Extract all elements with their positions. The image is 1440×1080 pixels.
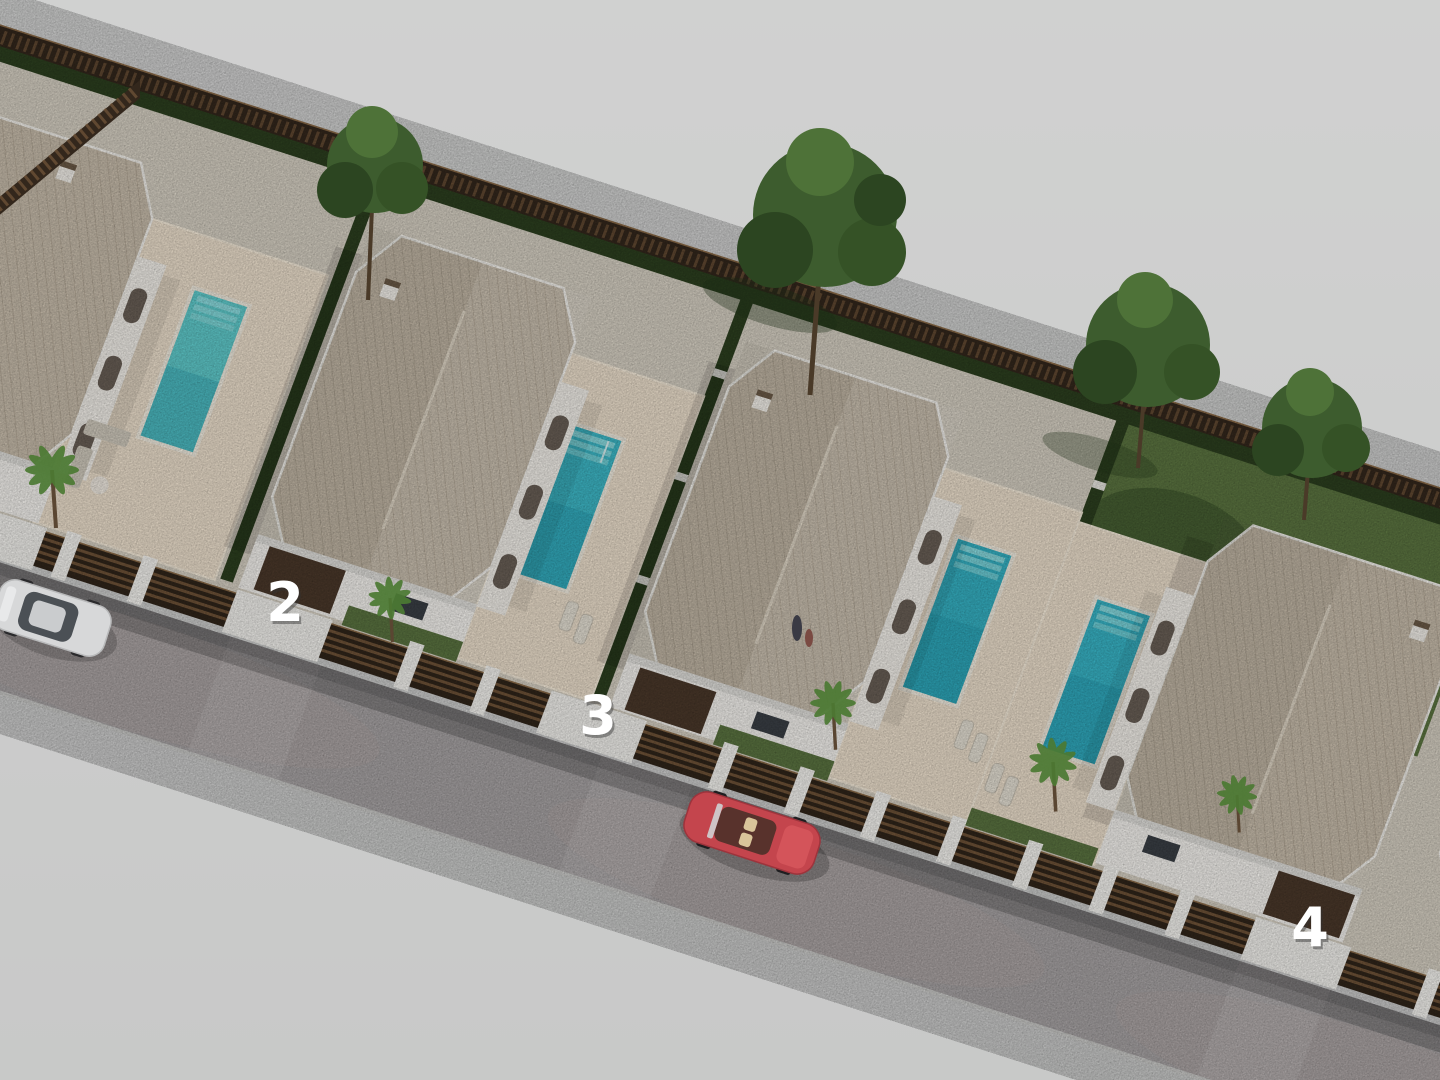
plot-label-2: 2 2 [266,571,306,637]
svg-text:3: 3 [579,684,617,747]
aerial-render: 2 2 3 3 4 4 [0,0,1440,1080]
villa-development-scene: 2 2 3 3 4 4 [0,0,1440,1080]
svg-text:2: 2 [266,571,304,634]
plot-label-4: 4 4 [1291,896,1331,962]
plot-label-3: 3 3 [579,684,619,750]
svg-text:4: 4 [1291,896,1329,959]
